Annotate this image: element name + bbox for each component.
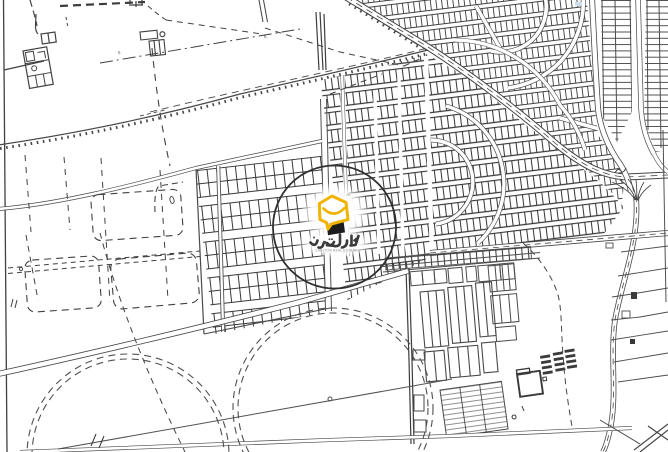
svg-text:TM: TM xyxy=(346,193,351,197)
svg-text:CARLTON REAL ESTATE: CARLTON REAL ESTATE xyxy=(315,249,358,253)
